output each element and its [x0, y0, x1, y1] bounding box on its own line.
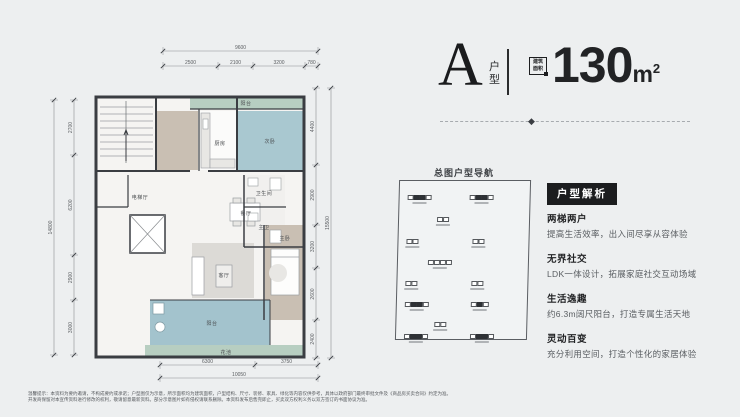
site-map-block	[406, 239, 418, 244]
analysis-item: 生活逸趣 约6.3m阔尺阳台，打造专属生活天地	[547, 291, 732, 320]
dimension-value: 15500	[325, 216, 331, 230]
dimension-value: 2100	[230, 60, 241, 66]
dimension-value: 2600	[310, 288, 316, 299]
room-label-elevator-hall: 电梯厅	[132, 194, 149, 201]
site-map-block-label	[475, 341, 489, 343]
storage-room-area	[157, 111, 198, 170]
unit-cell	[477, 281, 483, 286]
dimension-value: 14800	[48, 220, 54, 234]
area-unit-superscript: 2	[653, 61, 660, 76]
analysis-item: 灵动百变 充分利用空间，打造个性化的家居体验	[547, 331, 732, 360]
dimension-value: 4400	[310, 121, 316, 132]
unit-type-letter: A	[438, 34, 483, 96]
unit-label-char-1: 户	[489, 61, 502, 74]
disclaimer-text: 温馨提示：本资料为要约邀请，不构成要约或承诺；户型图仅为示意，所示面积均为建筑面…	[28, 391, 716, 403]
site-map-block-label	[433, 329, 447, 331]
elevator-icon	[130, 215, 165, 253]
site-map-block	[471, 281, 483, 286]
unit-label-char-2: 型	[489, 74, 502, 87]
site-map-block	[405, 302, 429, 307]
room-label-kitchen: 厨房	[214, 140, 225, 147]
dimension-value: 3200	[273, 60, 284, 66]
site-map-block	[437, 217, 449, 222]
analysis-heading: 两梯两户	[547, 211, 732, 225]
analysis-heading: 生活逸趣	[547, 291, 732, 305]
unit-cell	[483, 302, 489, 307]
site-map	[395, 180, 531, 340]
analysis-desc: 提高生活效率，出入间尽享从容体验	[547, 228, 732, 240]
floor-plan: 阳台 厨房 次卧 卫生间 主卫 餐厅 客厅 主卧 电梯厅 阳台 花池 96002…	[40, 35, 340, 385]
room-label-master: 主卧	[279, 235, 290, 242]
area-unit: m	[632, 61, 652, 88]
room-label-bath: 卫生间	[256, 190, 273, 197]
site-map-block-label	[409, 341, 423, 343]
site-map-block	[408, 195, 432, 200]
unit-cell	[411, 281, 417, 286]
dimension-value: 3750	[281, 359, 292, 365]
site-map-block	[470, 195, 494, 200]
area-figure: 130m2	[552, 36, 660, 94]
room-label-planter: 花池	[220, 349, 231, 356]
dimension-value: 2900	[310, 189, 316, 200]
dimension-value: 3200	[310, 241, 316, 252]
separator-diamond-icon: ◆	[528, 116, 535, 127]
dimension-value: 2400	[310, 333, 316, 344]
site-map-block-label	[433, 267, 447, 269]
site-map-block	[470, 334, 494, 339]
unit-cell	[423, 302, 429, 307]
analysis-heading: 无界社交	[547, 251, 732, 265]
site-map-block-label	[404, 288, 418, 290]
disclaimer-line2: 开发商保留对本宣传资料进行修改的权利，敬请留意最新资料。部分示意图片如有侵权请联…	[28, 397, 716, 403]
unit-cell	[443, 217, 449, 222]
dimension-value: 3000	[68, 322, 74, 333]
dimension-value: 2700	[68, 122, 74, 133]
analysis-desc: 充分利用空间，打造个性化的家居体验	[547, 348, 732, 360]
room-label-master-bath: 主卫	[258, 224, 269, 231]
dashed-separator	[440, 121, 690, 122]
room-label-top-balcony: 阳台	[240, 100, 251, 107]
floor-plan-drawing: 阳台 厨房 次卧 卫生间 主卫 餐厅 客厅 主卧 电梯厅 阳台 花池 96002…	[40, 35, 340, 385]
analysis-desc: LDK一体设计，拓展家庭社交互动场域	[547, 268, 732, 280]
area-badge-line1: 建筑	[530, 59, 546, 66]
unit-cell	[422, 334, 428, 339]
dimension-value: 2500	[185, 60, 196, 66]
unit-cell	[412, 239, 418, 244]
bed-icon	[269, 249, 299, 295]
dimension-value: 780	[307, 60, 316, 66]
area-badge-line2: 面积	[530, 66, 546, 73]
site-map-block-label	[470, 288, 484, 290]
site-map-block-label	[410, 309, 424, 311]
site-map-block	[471, 302, 489, 307]
unit-cell	[488, 334, 494, 339]
room-label-dining: 餐厅	[240, 210, 251, 217]
dimension-value: 9600	[235, 45, 246, 51]
analysis-item: 两梯两户 提高生活效率，出入间尽享从容体验	[547, 211, 732, 240]
site-map-block	[404, 334, 428, 339]
site-map-block	[428, 260, 452, 265]
site-map-title: 总图户型导航	[398, 166, 530, 179]
dimension-value: 6300	[202, 359, 213, 365]
analysis-heading: 灵动百变	[547, 331, 732, 345]
header-divider	[507, 49, 509, 95]
site-map-block-label	[405, 246, 419, 248]
dimension-value: 2900	[68, 272, 74, 283]
site-map-block-label	[474, 202, 488, 204]
site-map-block-label	[436, 224, 450, 226]
building-area-badge: 建筑 面积	[529, 57, 547, 75]
room-label-bedroom2: 次卧	[264, 138, 275, 145]
analysis-title-badge: 户型解析	[547, 183, 617, 205]
area-value: 130	[552, 36, 632, 94]
site-map-block	[405, 281, 417, 286]
site-map-block	[434, 322, 446, 327]
unit-cell	[426, 195, 432, 200]
unit-cell	[440, 322, 446, 327]
room-label-balcony: 阳台	[206, 320, 217, 327]
site-map-block-label	[471, 246, 485, 248]
analysis-item: 无界社交 LDK一体设计，拓展家庭社交互动场域	[547, 251, 732, 280]
analysis-list: 两梯两户 提高生活效率，出入间尽享从容体验 无界社交 LDK一体设计，拓展家庭社…	[547, 211, 732, 371]
site-map-block-label	[412, 202, 426, 204]
unit-cell	[446, 260, 452, 265]
analysis-desc: 约6.3m阔尺阳台，打造专属生活天地	[547, 308, 732, 320]
site-map-block	[472, 239, 484, 244]
site-map-block-label	[473, 309, 487, 311]
room-label-living: 客厅	[218, 272, 229, 279]
unit-type-label: 户 型	[489, 61, 502, 87]
dimension-value: 6200	[68, 199, 74, 210]
unit-cell	[478, 239, 484, 244]
dimension-value: 10050	[232, 372, 246, 378]
unit-cell	[488, 195, 494, 200]
